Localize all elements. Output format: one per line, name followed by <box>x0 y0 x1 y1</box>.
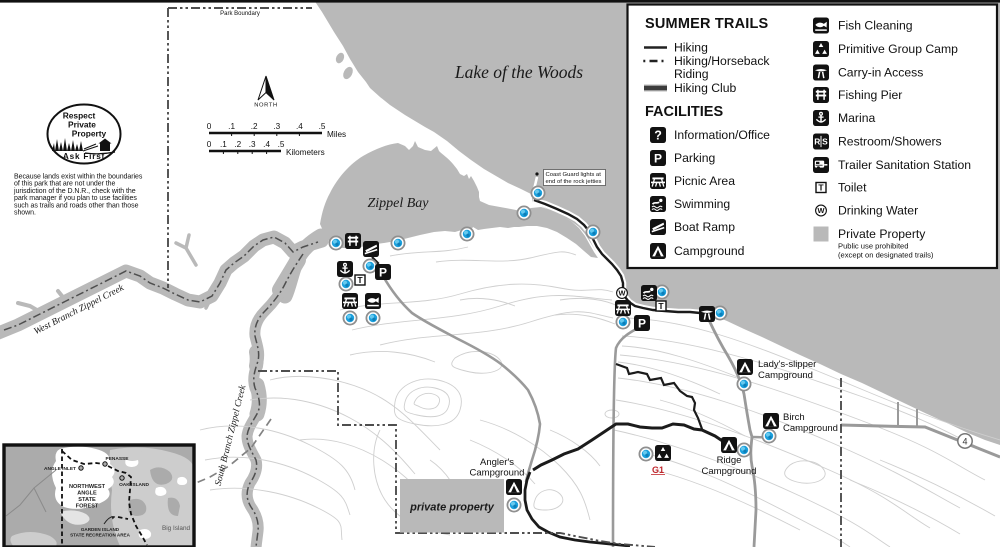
svg-text:0: 0 <box>207 122 212 131</box>
svg-text:Coast Guard lights at: Coast Guard lights at <box>546 172 602 178</box>
svg-text:4: 4 <box>962 437 967 447</box>
svg-text:.5: .5 <box>319 122 326 131</box>
svg-text:Private Property: Private Property <box>838 227 926 241</box>
svg-text:Primitive Group Camp: Primitive Group Camp <box>838 42 958 56</box>
svg-text:Information/Office: Information/Office <box>674 128 770 142</box>
svg-text:Ridge: Ridge <box>717 455 742 466</box>
svg-text:.3: .3 <box>249 140 256 149</box>
svg-text:of this park that are not unde: of this park that are not under the <box>14 181 116 188</box>
svg-text:Angler's: Angler's <box>480 457 514 468</box>
svg-text:Drinking Water: Drinking Water <box>838 204 918 218</box>
svg-text:Hiking: Hiking <box>674 41 708 55</box>
svg-text:Property: Property <box>72 129 107 139</box>
svg-text:PENASSE: PENASSE <box>106 456 130 462</box>
svg-text:Big Island: Big Island <box>162 525 191 532</box>
svg-text:Picnic Area: Picnic Area <box>674 174 735 188</box>
svg-text:GARDEN ISLAND: GARDEN ISLAND <box>81 527 120 532</box>
svg-text:Hiking Club: Hiking Club <box>674 81 737 95</box>
svg-text:.1: .1 <box>228 122 235 131</box>
svg-text:ANGLE INLET: ANGLE INLET <box>44 466 76 472</box>
svg-text:Birch: Birch <box>783 412 805 423</box>
svg-text:end of the rock jetties: end of the rock jetties <box>546 179 602 185</box>
svg-text:Marina: Marina <box>838 111 875 125</box>
svg-text:0: 0 <box>207 140 212 149</box>
svg-text:NORTHWEST: NORTHWEST <box>69 484 106 490</box>
svg-text:Toilet: Toilet <box>838 181 867 195</box>
svg-text:OAK ISLAND: OAK ISLAND <box>119 482 149 488</box>
svg-text:Kilometers: Kilometers <box>286 148 325 157</box>
svg-text:Boat Ramp: Boat Ramp <box>674 220 735 234</box>
svg-text:Campground: Campground <box>783 423 838 434</box>
svg-text:Fish Cleaning: Fish Cleaning <box>838 19 913 33</box>
svg-text:.3: .3 <box>273 122 280 131</box>
svg-text:shown.: shown. <box>14 210 36 217</box>
svg-text:jurisdiction of the D.N.R., ch: jurisdiction of the D.N.R., check with t… <box>13 188 136 195</box>
svg-text:.1: .1 <box>220 140 227 149</box>
svg-text:private property: private property <box>409 502 495 514</box>
svg-text:.5: .5 <box>278 140 285 149</box>
svg-text:STATE RECREATION AREA: STATE RECREATION AREA <box>70 533 130 538</box>
svg-text:Campground: Campground <box>674 244 744 258</box>
svg-text:.4: .4 <box>296 122 303 131</box>
svg-text:Hiking/Horseback: Hiking/Horseback <box>674 54 770 68</box>
svg-text:Public use prohibited: Public use prohibited <box>838 242 909 251</box>
svg-text:Park Boundary: Park Boundary <box>220 11 260 17</box>
svg-text:.4: .4 <box>263 140 270 149</box>
svg-text:NORTH: NORTH <box>254 103 278 109</box>
svg-text:FACILITIES: FACILITIES <box>645 104 723 120</box>
svg-text:G1: G1 <box>652 465 664 475</box>
svg-text:Ask First: Ask First <box>63 152 105 161</box>
svg-text:Campground: Campground <box>470 468 525 479</box>
svg-text:Parking: Parking <box>674 151 715 165</box>
svg-text:park manager if you plan to us: park manager if you plan to use faciliti… <box>14 195 137 202</box>
svg-text:Swimming: Swimming <box>674 197 730 211</box>
svg-text:such as trails and roads other: such as trails and roads other than thos… <box>14 202 139 209</box>
svg-text:Fishing Pier: Fishing Pier <box>838 88 902 102</box>
svg-text:Lake of the Woods: Lake of the Woods <box>454 62 583 82</box>
svg-text:Campground: Campground <box>758 370 813 381</box>
svg-text:.2: .2 <box>234 140 241 149</box>
svg-text:ANGLE: ANGLE <box>77 491 97 497</box>
svg-text:Miles: Miles <box>327 130 346 139</box>
svg-text:SUMMER TRAILS: SUMMER TRAILS <box>645 16 769 32</box>
svg-text:Trailer Sanitation Station: Trailer Sanitation Station <box>838 158 971 172</box>
svg-text:(except on designated trails): (except on designated trails) <box>838 251 934 260</box>
svg-text:Carry-in Access: Carry-in Access <box>838 66 923 80</box>
svg-text:.2: .2 <box>251 122 258 131</box>
svg-text:Because lands exist within the: Because lands exist within the boundarie… <box>14 173 143 180</box>
svg-text:Restroom/Showers: Restroom/Showers <box>838 135 942 149</box>
svg-text:Lady's-slipper: Lady's-slipper <box>758 359 816 370</box>
svg-text:FOREST: FOREST <box>76 504 99 510</box>
svg-text:STATE: STATE <box>78 497 96 503</box>
svg-text:Riding: Riding <box>674 67 709 81</box>
svg-text:Zippel Bay: Zippel Bay <box>367 196 429 211</box>
svg-text:Campground: Campground <box>702 466 757 477</box>
